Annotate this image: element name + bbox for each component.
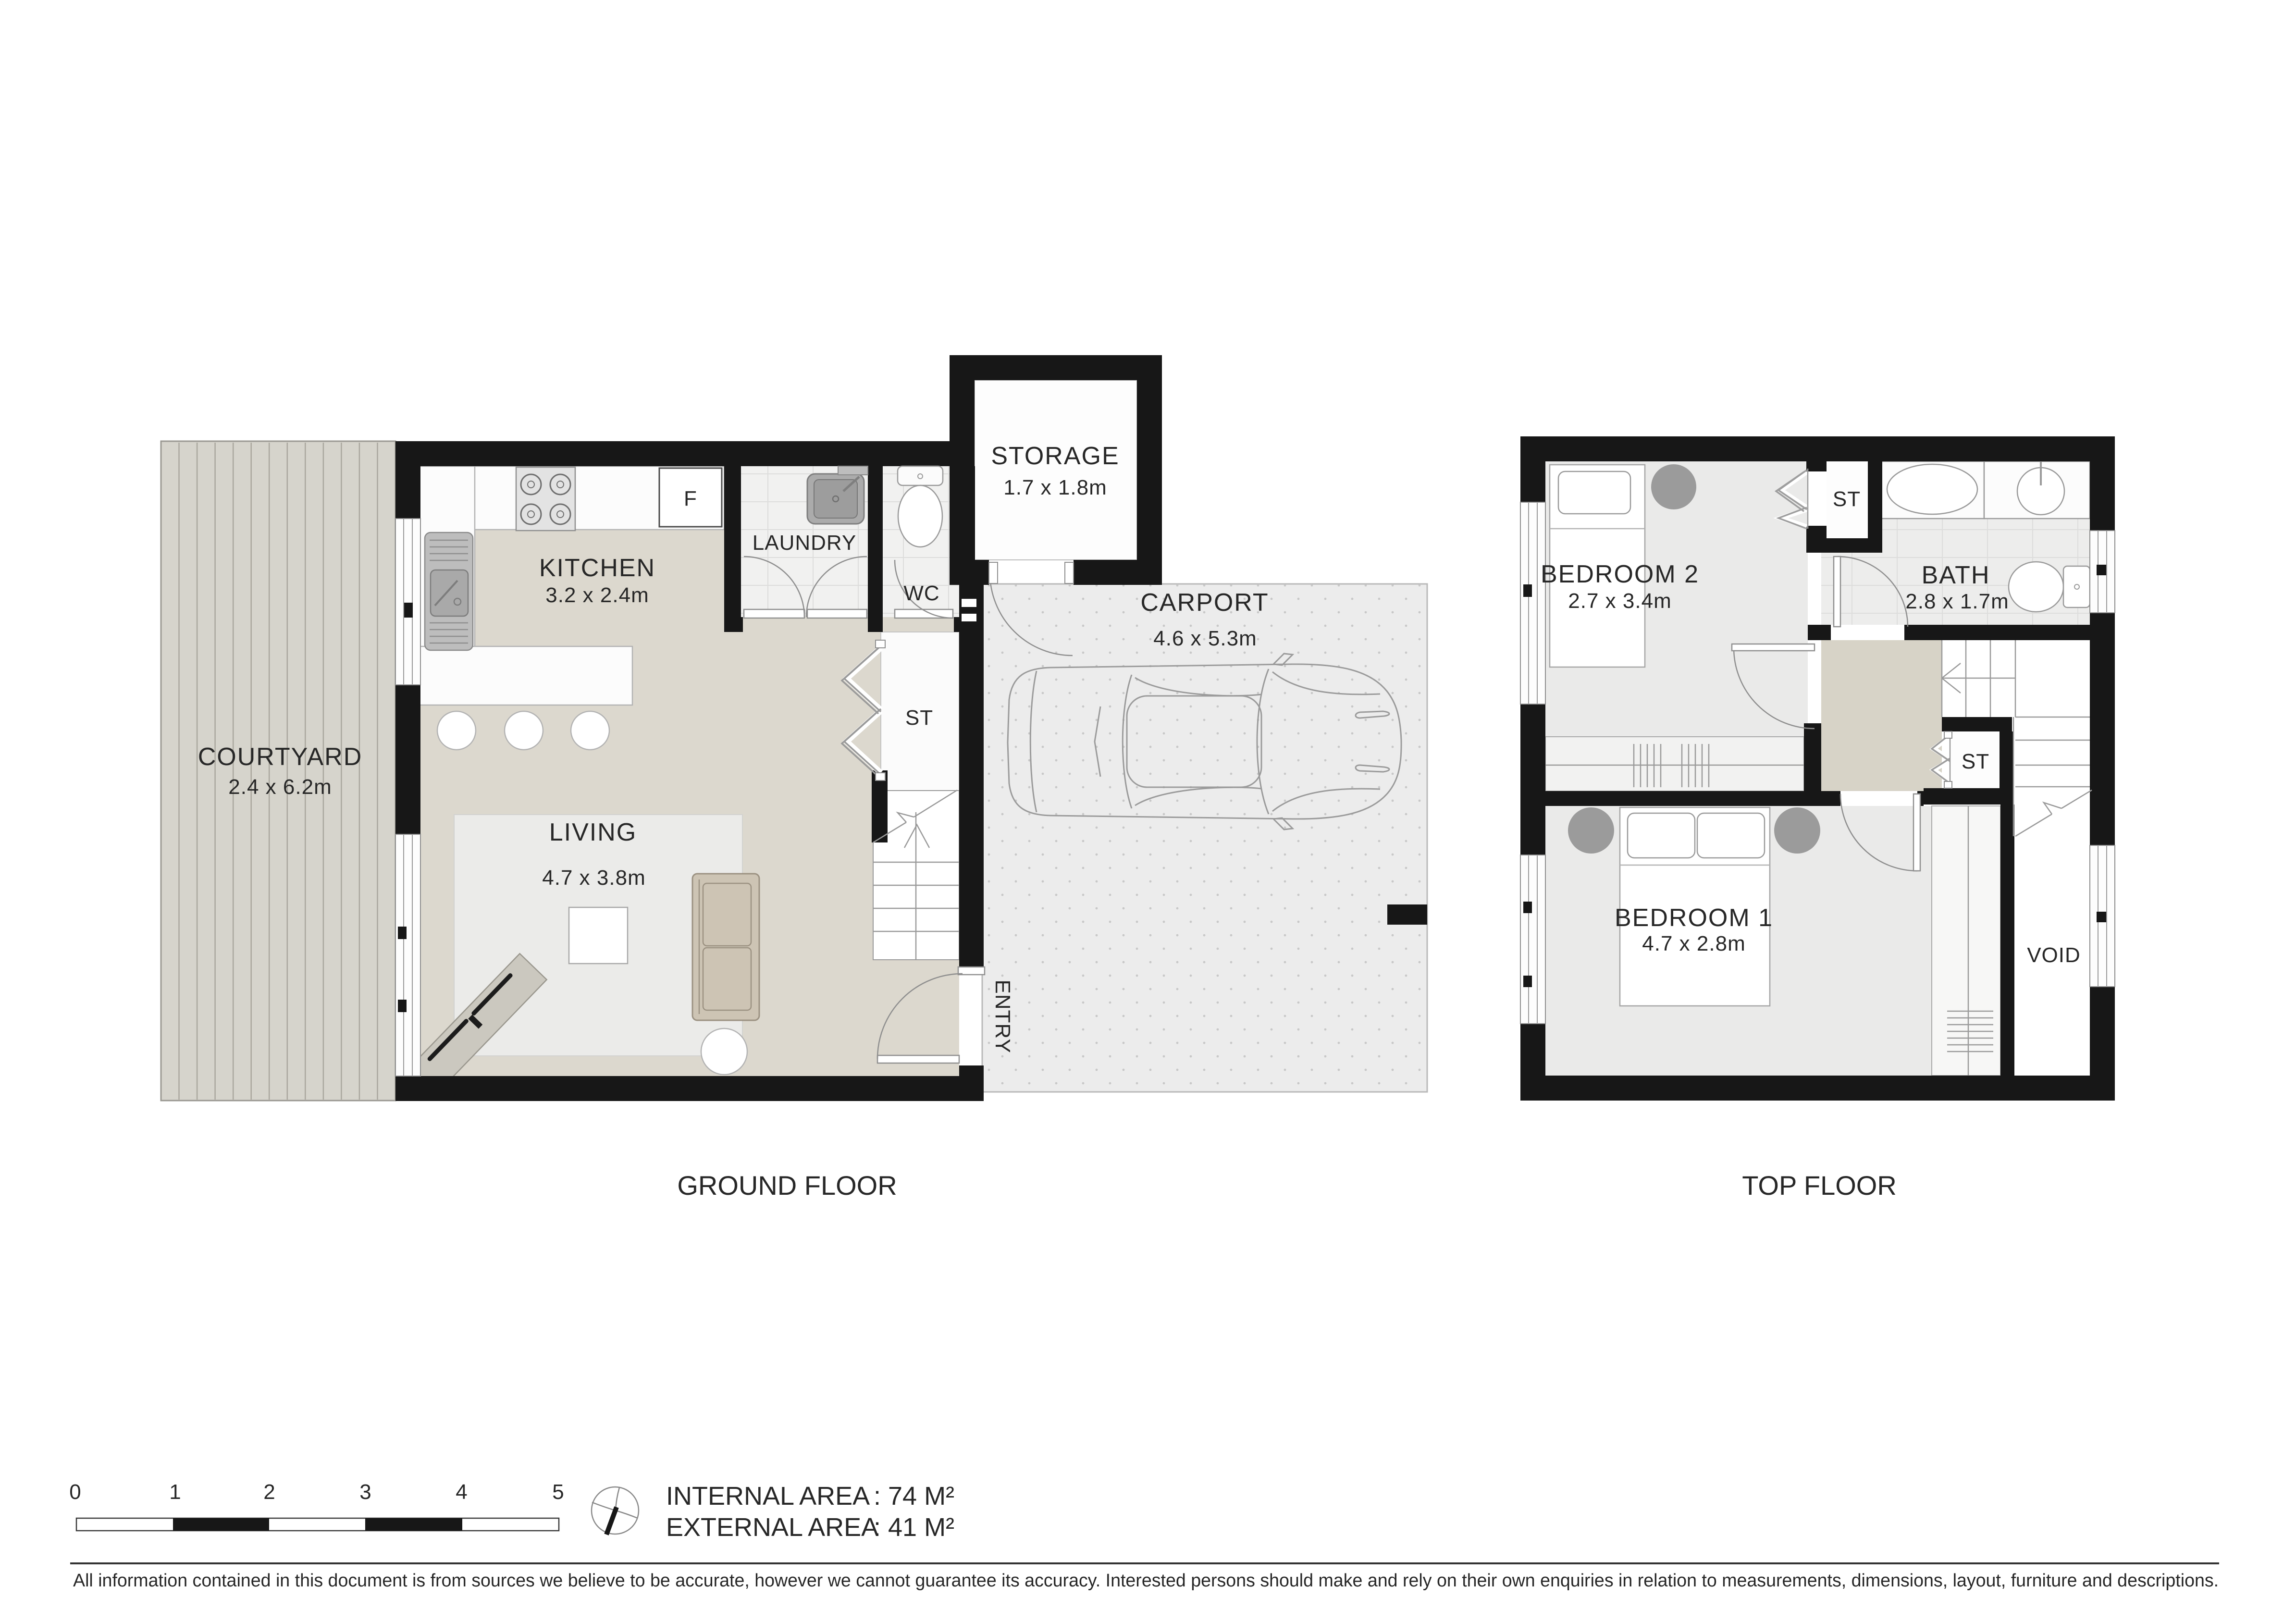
svg-text:BEDROOM 2: BEDROOM 2 — [1541, 560, 1699, 588]
svg-text:ST: ST — [1833, 487, 1861, 511]
svg-text:All information contained in t: All information contained in this docume… — [73, 1570, 2219, 1590]
svg-text:3.2 x 2.4m: 3.2 x 2.4m — [545, 583, 649, 607]
svg-text:1.7 x 1.8m: 1.7 x 1.8m — [1003, 476, 1107, 499]
svg-text:4: 4 — [456, 1480, 468, 1504]
svg-text:ENTRY: ENTRY — [991, 979, 1014, 1053]
svg-text:KITCHEN: KITCHEN — [539, 554, 655, 582]
svg-text:2.7 x 3.4m: 2.7 x 3.4m — [1568, 589, 1671, 613]
svg-text:LIVING: LIVING — [549, 818, 637, 846]
svg-text:1: 1 — [169, 1480, 181, 1504]
svg-text:BATH: BATH — [1922, 561, 1990, 589]
svg-text:4.7 x 3.8m: 4.7 x 3.8m — [542, 866, 645, 890]
svg-text:: 74 M²: : 74 M² — [874, 1482, 954, 1511]
svg-text:GROUND FLOOR: GROUND FLOOR — [677, 1170, 897, 1201]
svg-text:2.8 x 1.7m: 2.8 x 1.7m — [1905, 590, 2009, 613]
svg-text:3: 3 — [359, 1480, 371, 1504]
svg-text:LAUNDRY: LAUNDRY — [753, 531, 856, 555]
svg-text:4.6 x 5.3m: 4.6 x 5.3m — [1153, 627, 1257, 650]
svg-text:4.7 x 2.8m: 4.7 x 2.8m — [1642, 932, 1745, 955]
svg-text:F: F — [684, 487, 697, 510]
svg-text:VOID: VOID — [2027, 943, 2081, 967]
svg-text:COURTYARD: COURTYARD — [198, 743, 363, 771]
svg-text:2: 2 — [263, 1480, 275, 1504]
svg-text:5: 5 — [552, 1480, 564, 1504]
svg-text:WC: WC — [903, 582, 939, 605]
svg-text:EXTERNAL AREA: EXTERNAL AREA — [666, 1513, 878, 1542]
svg-text:2.4 x 6.2m: 2.4 x 6.2m — [228, 775, 332, 799]
svg-text:CARPORT: CARPORT — [1140, 589, 1269, 617]
svg-text:TOP FLOOR: TOP FLOOR — [1742, 1170, 1897, 1201]
svg-text:STORAGE: STORAGE — [991, 442, 1119, 470]
svg-text:: 41 M²: : 41 M² — [874, 1513, 954, 1542]
svg-text:ST: ST — [905, 706, 933, 730]
svg-text:BEDROOM 1: BEDROOM 1 — [1615, 904, 1773, 932]
svg-text:ST: ST — [1962, 750, 1989, 773]
svg-text:0: 0 — [69, 1480, 81, 1504]
svg-text:INTERNAL AREA: INTERNAL AREA — [666, 1482, 870, 1511]
